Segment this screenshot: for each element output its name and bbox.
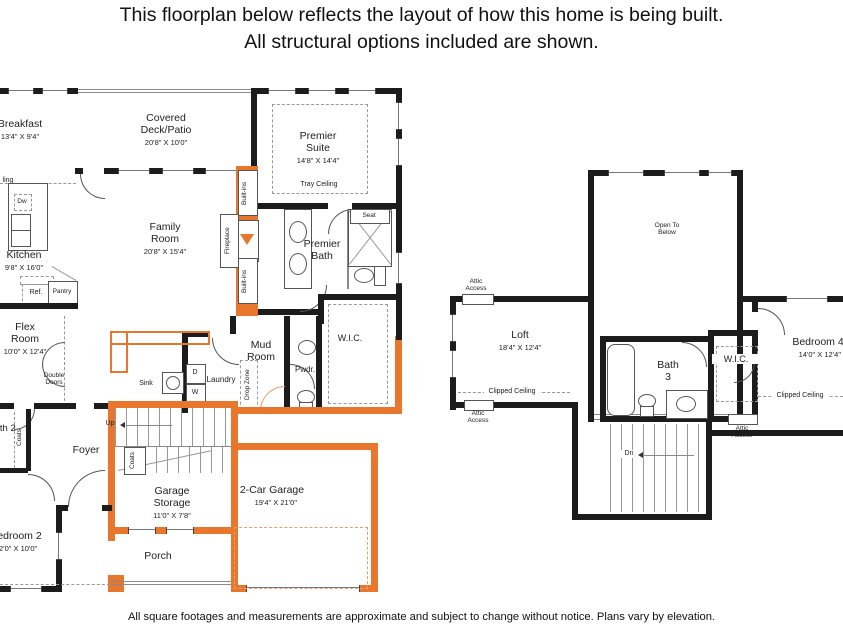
powder-sink [298, 340, 316, 355]
room-name: Foyer [60, 445, 112, 457]
dn-arrow-line [644, 455, 694, 456]
window [708, 170, 732, 176]
fireplace-label: Fireplace [224, 218, 231, 264]
window [128, 527, 156, 534]
wall [0, 303, 78, 309]
window [162, 168, 194, 174]
wall [316, 316, 322, 413]
wall [708, 336, 714, 422]
washer-label: W [186, 389, 204, 397]
window [56, 532, 62, 560]
wall [706, 430, 843, 436]
wall [26, 409, 31, 471]
window [8, 88, 34, 94]
room-dims: 20'8" X 10'0" [145, 139, 187, 147]
room-pwdr: Pwdr. [288, 366, 322, 375]
title-line-2: All structural options included are show… [0, 29, 843, 56]
bedroom2-door-arc [28, 474, 55, 501]
room-premier-bath: Premier Bath [298, 239, 346, 263]
garage-door-dash [234, 527, 368, 589]
window [396, 252, 402, 284]
room-name: Loft [478, 330, 562, 342]
room-kitchen: Kitchen 9'8" X 16'0" [0, 250, 61, 274]
wall [0, 468, 28, 473]
room-name: 2-Car Garage [222, 485, 322, 497]
window [118, 168, 150, 174]
deck-wall [78, 92, 251, 93]
front-door-arc [68, 470, 105, 507]
wall [251, 88, 257, 170]
clipped-ceiling-label: Clipped Ceiling [772, 392, 828, 400]
room-dims: 19'4" X 21'0" [255, 499, 297, 507]
attic-access-hatch [462, 294, 494, 305]
wall [572, 402, 578, 520]
built-ins-label: Built-ins [241, 173, 248, 213]
tray-ceiling-label: Tray Ceiling [289, 181, 349, 189]
room-name: W.I.C. [712, 354, 760, 364]
disclaimer-text: All square footages and measurements are… [0, 611, 843, 623]
window [396, 102, 402, 130]
attic-access-label: Attic Access [465, 410, 491, 424]
room-bath2: Bath 2 [0, 424, 18, 435]
window [42, 88, 68, 94]
attic-access-label: Attic Access [463, 278, 489, 292]
porch-edge [110, 584, 231, 585]
kitchen-sink [11, 214, 31, 231]
wall-orange [234, 407, 402, 414]
room-dims: 9'8" X 16'0" [5, 264, 43, 272]
dn-label: Dn [620, 450, 638, 458]
window [348, 88, 376, 94]
room-name: Kitchen [0, 250, 61, 262]
room-dims: 14'0" X 12'4" [799, 351, 841, 359]
room-name: Covered Deck/Patio [136, 113, 196, 137]
wall [0, 403, 14, 409]
title-line-1: This floorplan below reflects the layout… [0, 2, 843, 29]
room-dims: 20'8" X 15'4" [144, 248, 186, 256]
sink-label: Sink [132, 380, 160, 388]
room-name: Garage Storage [147, 486, 197, 510]
room-name: Flex Room [5, 322, 45, 346]
attic-access-hatch [728, 414, 758, 425]
window [205, 168, 237, 174]
up-label: Up [100, 420, 120, 428]
room-covered-deck: Covered Deck/Patio 20'8" X 10'0" [136, 113, 196, 148]
sink-oval [676, 396, 696, 412]
room-name: W.I.C. [325, 333, 375, 343]
room-family: Family Room 20'8" X 15'4" [143, 222, 187, 257]
stairs-up [115, 408, 231, 446]
wall [34, 403, 76, 409]
porch-edge [110, 581, 231, 582]
room-laundry: Laundry [198, 376, 244, 385]
closet-rod-dash [14, 412, 15, 468]
bedroom4-door-arc [758, 308, 785, 335]
wall-orange [108, 401, 238, 408]
wall-orange [395, 336, 402, 414]
room-bath3: Bath 3 [653, 360, 683, 384]
toilet-tank [374, 266, 386, 286]
room-bedroom4: Bedroom 4 14'0" X 12'4" [772, 337, 843, 361]
mudroom-door-arc [212, 338, 239, 365]
room-garage: 2-Car Garage 19'4" X 21'0" [222, 485, 322, 509]
porch-dash [0, 584, 110, 585]
window [268, 88, 296, 94]
refrigerator-label: Ref. [24, 289, 48, 297]
window [10, 586, 42, 592]
window [786, 296, 828, 302]
room-name: Porch [132, 551, 184, 563]
window [664, 170, 700, 176]
room-name: Mud Room [244, 340, 278, 364]
built-ins-label: Built-ins [241, 261, 248, 301]
floorplan-page: This floorplan below reflects the layout… [0, 0, 843, 632]
fireplace-flame-icon [240, 234, 254, 245]
up-arrow-head [120, 422, 125, 428]
closet-dash [328, 304, 388, 404]
room-name: Breakfast [0, 119, 58, 131]
toilet-base [640, 406, 654, 417]
wall-orange [238, 443, 378, 450]
deck-wall [78, 89, 251, 90]
coats-label: Coats [129, 449, 136, 472]
pantry-label: Pantry [49, 288, 75, 295]
butler-counter-orange [110, 331, 128, 373]
kitchen-sink [11, 230, 31, 247]
deck-door-arc [80, 174, 105, 199]
toilet [354, 268, 374, 283]
stairs-lower-run [145, 447, 231, 473]
stairs-down [610, 424, 706, 512]
wall [396, 310, 402, 340]
room-wic2: W.I.C. [712, 354, 760, 364]
wall [600, 336, 606, 422]
room-porch: Porch [132, 551, 184, 563]
wall [572, 514, 712, 520]
room-flex: Flex Room 10'0" X 12'4" [5, 322, 45, 357]
butler-sink-basin [166, 376, 180, 390]
room-name: Bedroom 2 [0, 531, 56, 543]
drop-zone-label: Drop Zone [244, 364, 251, 406]
room-loft: Loft 18'4" X 12'4" [478, 330, 562, 354]
bath3-door-arc [682, 342, 707, 367]
room-name: Premier Bath [298, 239, 346, 263]
room-name: Family Room [143, 222, 187, 246]
room-bedroom2: Bedroom 2 12'0" X 10'0" [0, 531, 56, 555]
open-to-below-label: Open To Below [652, 222, 682, 236]
room-dims: 11'0" X 7'8" [153, 512, 191, 520]
room-dims: 18'4" X 12'4" [499, 344, 541, 352]
window [166, 527, 194, 534]
room-breakfast: Breakfast 13'4" X 9'4" [0, 119, 58, 143]
wall [230, 316, 236, 334]
window [308, 88, 336, 94]
window [396, 138, 402, 166]
room-name: Bath 3 [653, 360, 683, 384]
seat-label: Seat [350, 212, 388, 219]
room-foyer: Foyer [60, 445, 112, 457]
wall [318, 294, 402, 300]
dishwasher-label: Dw [14, 198, 30, 205]
room-garage-storage: Garage Storage 11'0" X 7'8" [147, 486, 197, 521]
bathtub [607, 344, 635, 416]
wall [706, 422, 712, 520]
room-wic: W.I.C. [325, 333, 375, 343]
wall-orange [371, 443, 378, 592]
wall [708, 330, 758, 336]
room-dims: 12'0" X 10'0" [0, 545, 37, 553]
double-doors-label: Double Doors [36, 372, 72, 386]
room-name: Bath 2 [0, 424, 18, 435]
clipped-ceiling-label: Clipped Ceiling [484, 388, 540, 396]
wall [600, 336, 712, 342]
window [450, 314, 456, 342]
room-dims: 10'0" X 12'4" [4, 348, 46, 356]
room-name: Bedroom 4 [772, 337, 843, 349]
window [608, 170, 644, 176]
page-title: This floorplan below reflects the layout… [0, 2, 843, 56]
room-dims: 13'4" X 9'4" [1, 133, 39, 141]
dn-arrow-head [638, 452, 643, 458]
room-mud: Mud Room [244, 340, 278, 364]
window [450, 350, 456, 378]
up-arrow-line [126, 425, 172, 426]
